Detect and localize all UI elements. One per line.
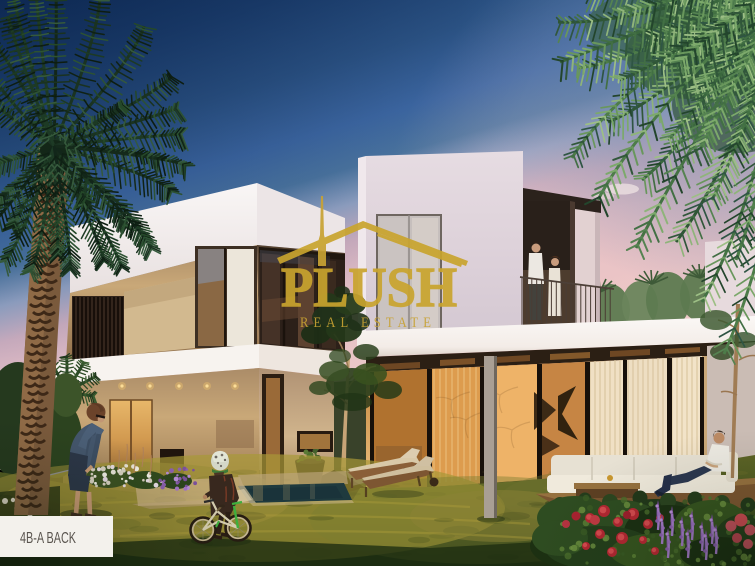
svg-text:4B-A BACK: 4B-A BACK: [20, 530, 76, 547]
svg-text:PLUSH: PLUSH: [281, 257, 457, 319]
svg-text:REAL ESTATE: REAL ESTATE: [300, 315, 436, 331]
